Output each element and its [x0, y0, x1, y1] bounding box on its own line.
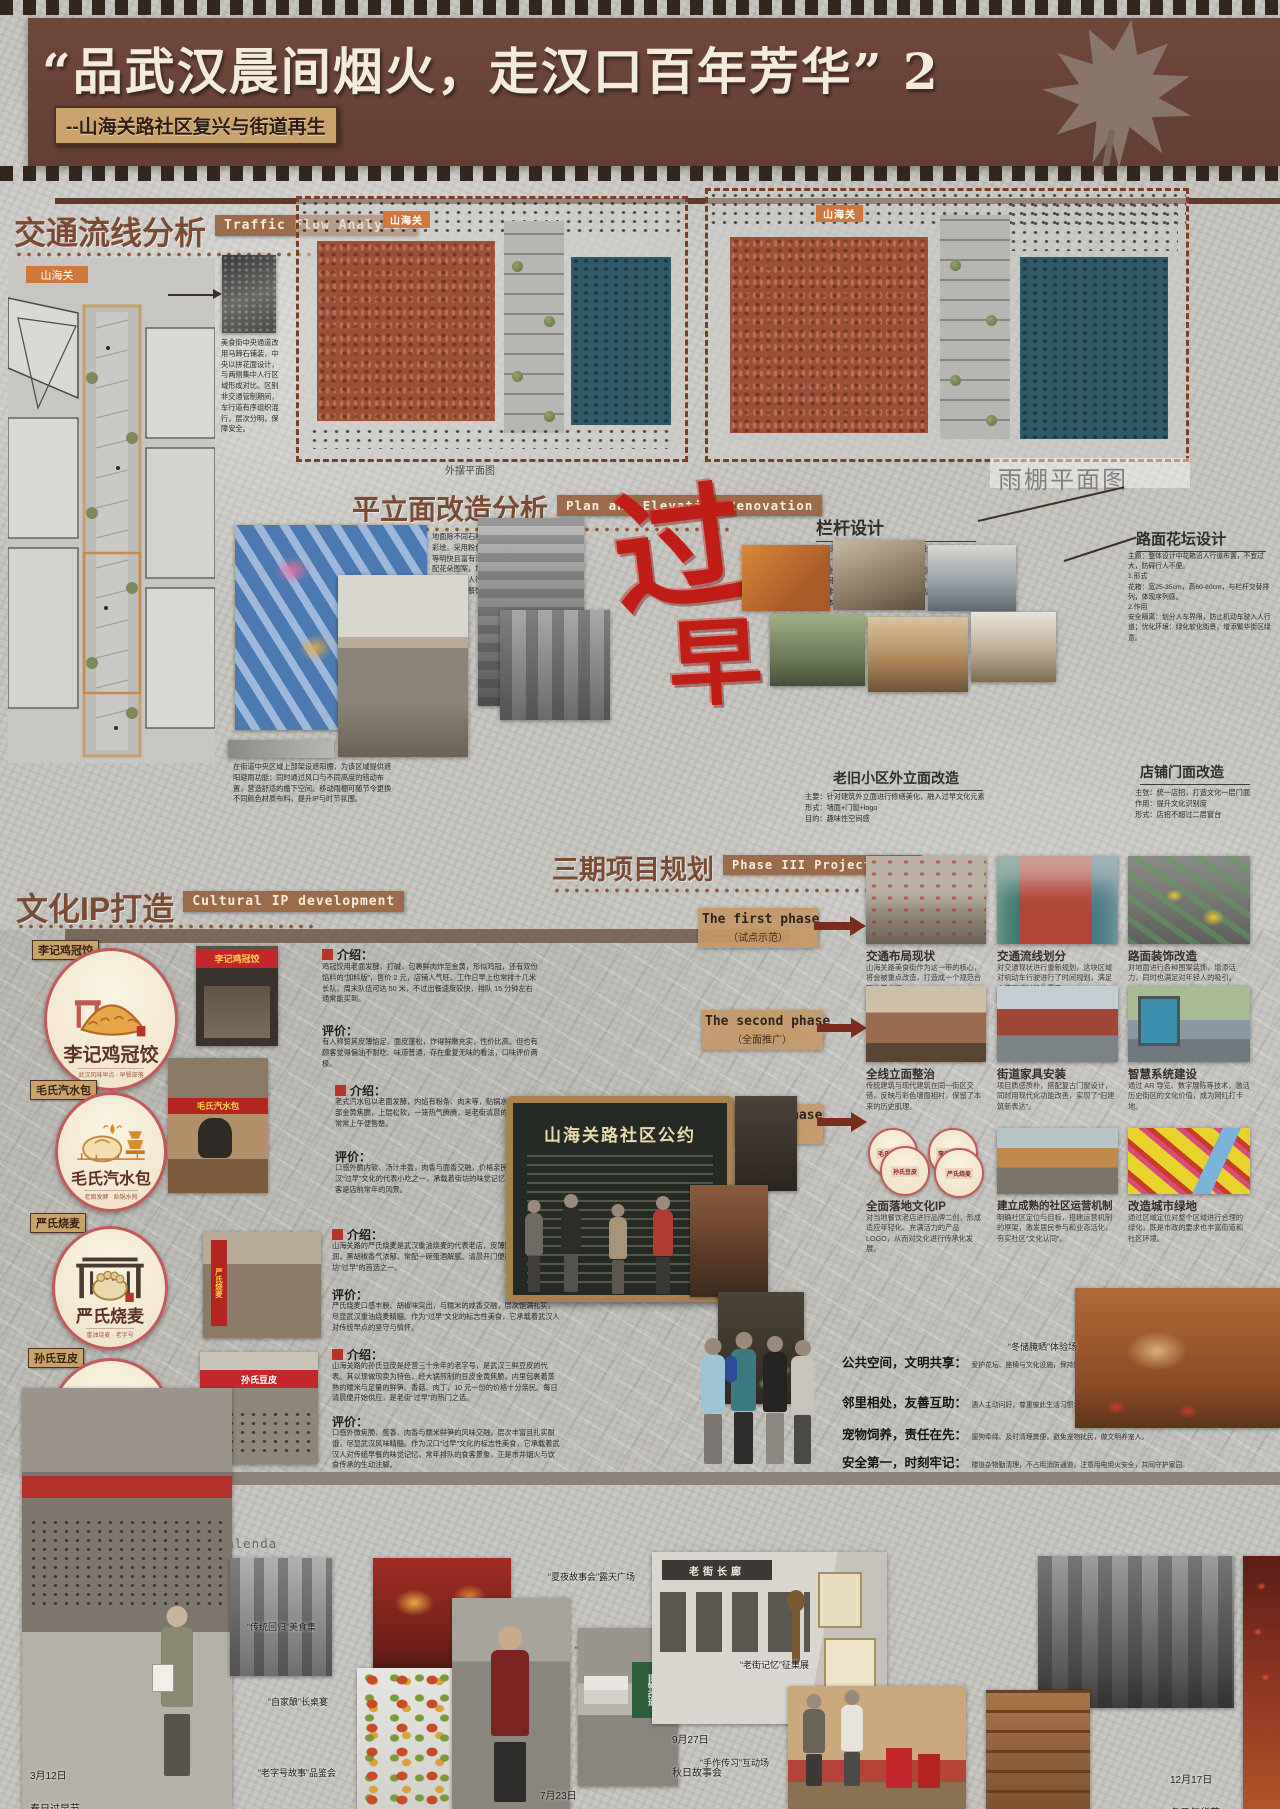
event-name: 春日过早节: [30, 1804, 80, 1809]
certificate: [818, 1572, 862, 1628]
convention-item: 安全第一，时刻牢记： 楼道杂物勤清理，不占用消防通道，注意用电用火安全，共同守护…: [842, 1452, 1247, 1472]
spring-street-photo: [22, 1388, 232, 1809]
elder-figure: [160, 1606, 194, 1776]
phase-arrow-2: [817, 1018, 867, 1038]
event-date-summer: 7月23日 夏日邻里宴: [540, 1772, 590, 1809]
yanshi-storefront-photo: 严氏烧麦: [203, 1232, 321, 1338]
wall-sign: 老街长廊: [662, 1560, 772, 1580]
phase-card-body: 对当地餐饮老店进行品牌二创，形成适应年轻化、充满活力的产品LOGO，从而对文化进…: [866, 1213, 986, 1255]
panel-a-flag: 山海关: [383, 211, 430, 228]
phase-photo: [997, 986, 1118, 1062]
eval-label: 评价：: [322, 1024, 358, 1038]
ip-name: 李记鸡冠饺: [63, 1040, 158, 1067]
event-date: 3月12日: [30, 1771, 67, 1782]
header-banner: “品武汉晨间烟火，走汉口百年芳华” 2 --山海关路社区复兴与街道再生: [28, 18, 1280, 166]
ip-label-sunshi: 孙氏豆皮: [28, 1348, 84, 1368]
event-date-winter: 12月17日 冬日年货节: [1170, 1756, 1220, 1809]
intro-label: 介绍：: [337, 948, 373, 962]
phase-card-body: 明确社区定位与目标，搭建运营机制的框架，激发居民参与和业态活化，夯实社区“文化认…: [997, 1213, 1118, 1244]
aerial-panel-a: 山海关: [296, 196, 688, 462]
sign-text: 李记鸡冠饺: [214, 952, 259, 965]
phase-photo: [997, 1128, 1118, 1194]
stacked-photo: [735, 1096, 797, 1191]
crafter-figure: [840, 1690, 864, 1786]
phase-zh: （全面推广）: [705, 1031, 819, 1046]
event-label: “老字号故事”品鉴会: [258, 1766, 336, 1779]
event-date: 7月23日: [540, 1791, 577, 1802]
eval-label: 评价：: [332, 1288, 368, 1302]
brown-divider-bar: [65, 929, 790, 943]
shopfront-note: 主张：统一店招，打造文化一层门面 作用：提升文化识别度 形式：店招不超过二层窗台: [1135, 788, 1275, 820]
event-label: “自家酿”长桌宴: [268, 1695, 328, 1708]
yanshi-eval: 严氏烧麦口感丰腴、胡椒味突出，与糯米的咸香交融，层次饱满扎实，尽显武汉重油烧麦精…: [332, 1301, 560, 1333]
ip-name: 毛氏汽水包: [71, 1165, 151, 1189]
aerial-panel-b: 山海关: [705, 188, 1189, 462]
collage-photo: [971, 612, 1056, 682]
spoon-decor: [792, 1606, 800, 1664]
intro-label: 介绍：: [350, 1084, 386, 1098]
event-date: 12月17日: [1170, 1775, 1212, 1786]
event-label: “夏夜故事会”露天广场: [548, 1570, 635, 1583]
event-date-spring: 3月12日 春日过早节: [30, 1752, 80, 1809]
traffic-note: 美食街中央通道改用马蹄石铺装，中央以拼花面设计，与两侧集中人行区域形成对比。区别…: [221, 338, 283, 435]
backpack: [725, 1356, 737, 1382]
vertical-sign: 严氏烧麦: [211, 1240, 227, 1326]
phase-card-body: 通过 AR 导览、数字展陈等技术，激活历史街区的文化价值，成为网红打卡地。: [1128, 1081, 1250, 1112]
ip-tagline: 老面发酵 · 贴锅水煎: [84, 1190, 137, 1201]
collage-photo: [742, 545, 830, 611]
liji-storefront-photo: 李记鸡冠饺: [196, 946, 278, 1046]
railing-design-title: 栏杆设计: [816, 514, 976, 542]
dumpling-icon: [68, 988, 154, 1040]
seal-icon: [322, 949, 333, 960]
ip-logo-maoshi: 毛氏汽水包 老面发酵 · 贴锅水煎: [55, 1092, 167, 1212]
roof-block: [571, 257, 671, 425]
person-figure: [700, 1338, 726, 1464]
storefront-banner: [22, 1476, 232, 1498]
phase-card-title: 交通流线划分: [997, 948, 1066, 964]
canopy-street-photo: [338, 575, 468, 757]
phase-badge-1: The first phase （试点示范）: [698, 908, 818, 948]
white-tent: [584, 1676, 628, 1690]
collage-photo: [770, 614, 865, 686]
intro-label: 介绍：: [347, 1348, 383, 1362]
shopfront-label: 店铺门面改造: [1140, 762, 1250, 785]
storefront-sign: 毛氏汽水包: [168, 1098, 268, 1114]
red-sign: [918, 1754, 940, 1788]
ip-label-yanshi: 严氏烧麦: [30, 1213, 86, 1233]
phase-photo: [866, 856, 986, 944]
convention-body: 楼道杂物勤清理，不占用消防通道，注意用电用火安全，共同守护家园。: [971, 1462, 1189, 1469]
collage-photo: [928, 545, 1016, 611]
maoshi-stall-photo: 毛氏汽水包: [168, 1058, 268, 1193]
old-facade-label: 老旧小区外立面改造: [833, 768, 983, 791]
event-label: “冬储腌晒”体验场: [1008, 1340, 1077, 1353]
pedestrian-dots: [1008, 201, 1178, 251]
cobblestone-photo: [222, 255, 276, 333]
caption-waibai: 外摆平面图: [445, 464, 495, 479]
phase-card-title: 街道家具安装: [997, 1066, 1066, 1082]
page-title: “品武汉晨间烟火，走汉口百年芳华” 2: [42, 32, 940, 104]
winter-dining-photo: [1075, 1288, 1280, 1428]
pedestrian-dots: [309, 427, 675, 449]
ip-logo-liji: 李记鸡冠饺 武汉风味早点 · 早餐部落: [44, 948, 178, 1091]
phase-photo: [1128, 1128, 1250, 1194]
mini-ip-name: 孙氏豆皮: [891, 1166, 919, 1177]
phase-arrow-1: [814, 916, 866, 936]
phase-arrow-3: [817, 1112, 867, 1132]
pedestrian-dots: [299, 199, 685, 233]
seal-icon: [332, 1229, 343, 1240]
smart-screen: [1138, 996, 1180, 1046]
sign-text: 毛氏汽水包: [197, 1100, 240, 1112]
person-figure: [652, 1196, 674, 1294]
shaomai-icon: [71, 1256, 149, 1302]
street-site-plan: 山海关: [8, 258, 215, 763]
convention-head: 公共空间，文明共享：: [842, 1356, 967, 1370]
poster: “品武汉晨间烟火，走汉口百年芳华” 2 --山海关路社区复兴与街道再生 交通流线…: [0, 0, 1280, 1809]
ip-logo-yanshi: 严氏烧麦 重油烧麦 · 老字号: [52, 1226, 168, 1350]
phase-photo: [866, 986, 986, 1062]
convention-body: 遛狗牵绳、及时清理粪便，避免宠物扰民，做文明养宠人。: [971, 1434, 1148, 1441]
eval-label: 评价：: [335, 1150, 371, 1164]
liji-eval: 有人称赞其皮薄馅足、面皮蓬松，炸得鲜嫩充实，性价比高。但也有顾客觉得偏油不耐吃、…: [322, 1037, 540, 1069]
page-subtitle: --山海关路社区复兴与街道再生: [54, 106, 338, 145]
person-figure: [608, 1204, 628, 1294]
flowerbed-note: 主题：整体设计中花箱沿人行道布置，不宜过大，防碍行人不便。 1.形式 花箱：宽2…: [1128, 552, 1276, 644]
roof-block: [1020, 257, 1168, 439]
event-label: “手作传习”互动场: [700, 1756, 769, 1769]
mini-ip-logo: 严氏烧麦: [934, 1148, 984, 1198]
stacked-photo: [690, 1185, 768, 1297]
phase-card-body: 通过区域定位对整个区域进行合理的绿化，既是市政的要求也丰富街道和社区环境。: [1128, 1213, 1250, 1244]
phase-photo: [997, 856, 1118, 944]
phase-card-body: 传统建筑与现代建筑在同一街区交错，反映与彩色墙面相衬，保留了本来的历史肌理。: [866, 1081, 986, 1112]
sign-text: 孙氏豆皮: [241, 1373, 277, 1386]
intro-heading: 介绍：: [322, 946, 373, 963]
phase-zh: （试点示范）: [702, 929, 814, 944]
phase-card-title: 智慧系统建设: [1128, 1066, 1197, 1082]
phase-card-title: 改造城市绿地: [1128, 1198, 1197, 1214]
street-strip: [940, 215, 1010, 439]
phase-card-title: 全面落地文化IP: [866, 1198, 946, 1214]
lantern-alley-photo: [1243, 1556, 1280, 1809]
event-label: “传统回归”美食集: [247, 1620, 316, 1633]
convention-head: 安全第一，时刻牢记：: [842, 1456, 967, 1470]
flyer: [152, 1664, 174, 1692]
sunshi-eval: 口感外微焦脆，蛋香、肉香与糯米鲜笋的风味交融，层次丰富且扎实耐饿，尽显武汉风味精…: [332, 1428, 560, 1471]
mini-ip-name: 严氏烧麦: [945, 1168, 973, 1179]
goods-shelf-photo: [986, 1690, 1090, 1809]
host-figure: [490, 1626, 530, 1802]
person-figure: [560, 1194, 582, 1292]
ip-tagline: 重油烧麦 · 老字号: [86, 1328, 133, 1339]
panel-b-flag: 山海关: [816, 205, 863, 222]
collage-photo: [833, 540, 925, 610]
leader-arrow: [213, 289, 222, 299]
building-block: [730, 237, 928, 433]
leader-line: [1064, 537, 1137, 562]
event-date: 9月27日: [672, 1735, 709, 1746]
handicraft-photo: [788, 1686, 966, 1809]
leader-line: [168, 294, 216, 296]
dotted-underline: [552, 888, 882, 893]
person-figure: [524, 1200, 544, 1292]
phase-badge-2: The second phase （全面推广）: [701, 1010, 823, 1050]
liji-intro: 鸡冠饺用老面发酵，打碱，包裹鲜肉炸至金黄，形似鸡冠，还有双份馅料的“加料版”，售…: [322, 962, 540, 1005]
sunshi-intro: 山海关路的孙氏豆皮是经营三十余年的老字号，是武汉三鲜豆皮的代表。其以现做现卖为特…: [332, 1361, 560, 1404]
phase-en: The first phase: [702, 912, 814, 927]
soda-bun-icon: [74, 1121, 148, 1165]
sign-text: 老街长廊: [689, 1563, 745, 1578]
phase-card-body: 项目质感质朴，搭配复古门窗设计，同时用现代化功能改善，实现了“旧建筑新表达”。: [997, 1081, 1118, 1112]
convention-head: 邻里相处，友善互助：: [842, 1396, 967, 1410]
eval-label: 评价：: [332, 1415, 368, 1429]
intro-label: 介绍：: [347, 1228, 383, 1242]
event-label: “老街记忆”征集展: [740, 1658, 809, 1671]
old-facade-note: 主要：针对建筑外立面进行修缮美化，融入过早文化元素 形式：墙面+门窗+logo …: [805, 792, 1035, 824]
convention-head: 宠物饲养，责任在先：: [842, 1428, 967, 1442]
section-title: 三期项目规划: [552, 848, 714, 887]
board-title: 山海关路社区公约: [513, 1121, 727, 1146]
bw-photo-small: [230, 1558, 332, 1676]
street-strip: [504, 221, 564, 433]
collage-photo: [868, 617, 968, 692]
seal-icon: [332, 1349, 343, 1360]
event-date-autumn: 9月27日 秋日故事会: [672, 1716, 722, 1782]
person-figure: [790, 1340, 815, 1464]
person-figure: [762, 1336, 788, 1464]
storefront-sign: 孙氏豆皮: [200, 1370, 318, 1388]
sign-text: 严氏烧麦: [214, 1268, 225, 1298]
phase-card-title: 建立成熟的社区运营机制: [997, 1198, 1113, 1213]
bw-city-photo: [1038, 1556, 1234, 1708]
canopy-note: 在街道中央区域上部架设遮阳棚，为该区域提供遮阳避雨功能；同时通过风口与不同高度的…: [233, 762, 393, 805]
event-name: 秋日故事会: [672, 1768, 722, 1779]
section-header-renovation: 平立面改造分析 Plan and Elevation Renovation: [352, 488, 822, 528]
section-title-en: Cultural IP development: [183, 891, 404, 912]
plan-flag-label: 山海关: [41, 268, 74, 282]
phase-en: The second phase: [705, 1014, 819, 1029]
phase-photo: [1128, 986, 1250, 1062]
phase-card-title: 交通布局现状: [866, 948, 935, 964]
ip-tagline: 武汉风味早点 · 早餐部落: [78, 1068, 143, 1079]
mini-ip-logo: 孙氏豆皮: [880, 1146, 930, 1196]
phase-photo: [1128, 856, 1250, 944]
section-title: 交通流线分析: [14, 208, 206, 254]
phase-card-title: 全线立面整治: [866, 1066, 935, 1082]
phase-card-body: 对地面进行各种图案装饰，增添活力，同时也满足对年轻人的吸引。: [1128, 963, 1250, 984]
ip-name: 严氏烧麦: [76, 1302, 144, 1327]
person-figure: [730, 1332, 757, 1464]
bw-street-photo-2: [500, 610, 610, 720]
filmstrip-under-header: [0, 166, 1280, 181]
phase-card-title: 路面装饰改造: [1128, 948, 1197, 964]
seal-icon: [335, 1085, 346, 1096]
building-block: [317, 241, 495, 421]
storefront-sign: 李记鸡冠饺: [196, 949, 278, 967]
crafter-figure: [802, 1694, 826, 1786]
alley-trees-photo: [228, 740, 334, 758]
red-sign: [886, 1748, 912, 1788]
flowerbed-design-title: 路面花坛设计: [1136, 528, 1266, 552]
